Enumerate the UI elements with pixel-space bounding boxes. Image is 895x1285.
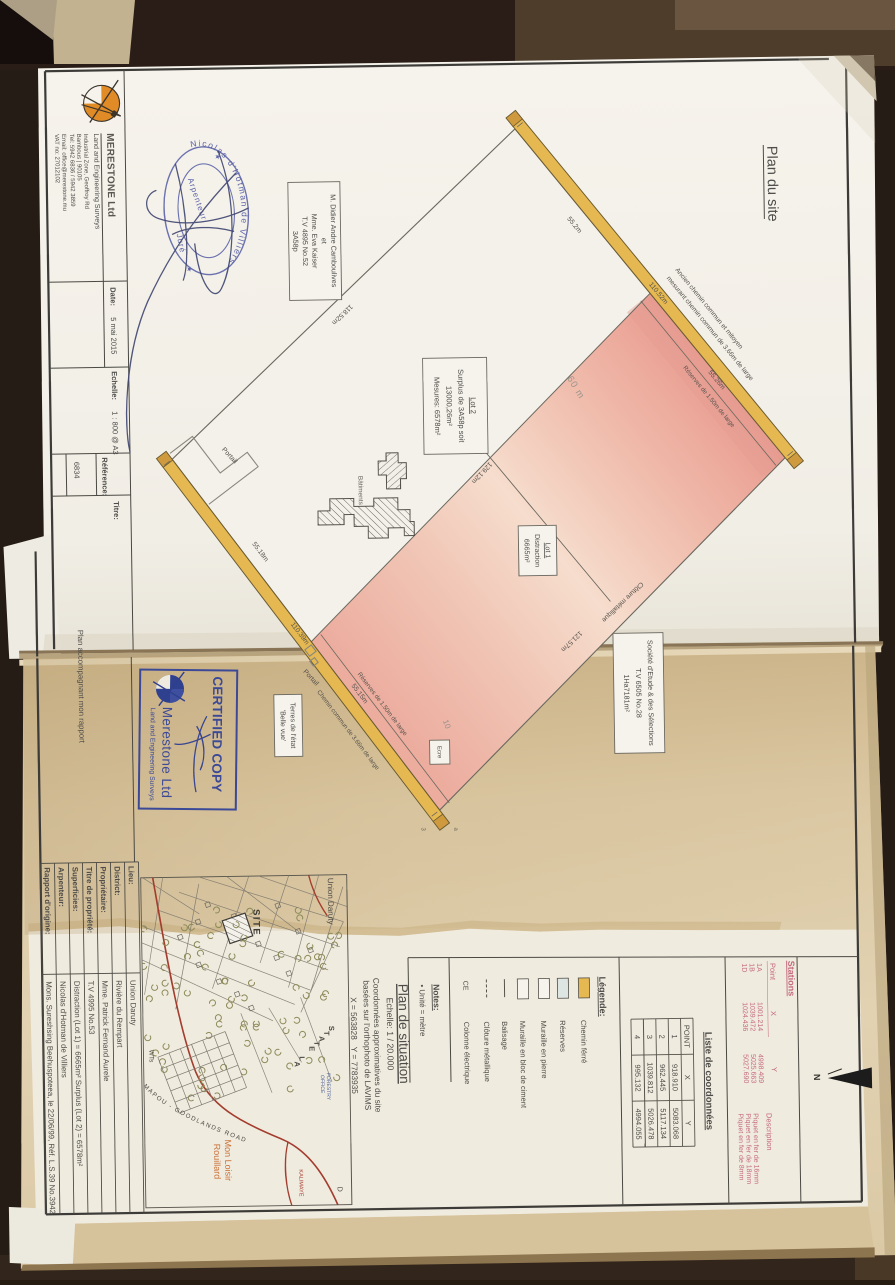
svg-text:M. Didier Andre Camboulives: M. Didier Andre Camboulives (328, 194, 338, 288)
svg-text:Colonne électrique: Colonne électrique (462, 1022, 472, 1085)
svg-text:Balisage: Balisage (500, 1021, 509, 1050)
svg-text:Description: Description (764, 1113, 774, 1151)
svg-text:WTs: WTs (147, 1050, 154, 1063)
svg-text:Piquet en fer de 8mm: Piquet en fer de 8mm (736, 1113, 744, 1180)
svg-text:5025.663: 5025.663 (749, 1054, 756, 1083)
svg-text:E: E (307, 1046, 316, 1051)
svg-text:4998.409: 4998.409 (757, 1054, 764, 1083)
svg-text:1 : 800 @ A3: 1 : 800 @ A3 (110, 411, 120, 455)
svg-text:CERTIFIED COPY: CERTIFIED COPY (209, 676, 225, 792)
svg-text:1: 1 (670, 1034, 679, 1038)
svg-text:1A: 1A (755, 963, 762, 972)
svg-text:Liste de coordonnées: Liste de coordonnées (702, 1032, 715, 1130)
svg-text:Plan du site: Plan du site (763, 146, 780, 222)
svg-text:Titre:: Titre: (112, 501, 121, 520)
svg-text:'Belle vue': 'Belle vue' (279, 710, 286, 742)
svg-text:Mme. Eva Kaiser: Mme. Eva Kaiser (310, 214, 320, 269)
svg-text:• Unité = mètre: • Unité = mètre (417, 984, 427, 1036)
svg-text:Bambous | 90105: Bambous | 90105 (75, 134, 82, 182)
svg-text:Notes:: Notes: (431, 984, 441, 1011)
svg-text:918.910: 918.910 (670, 1064, 679, 1091)
svg-text:Bâtiments: Bâtiments (356, 476, 363, 506)
svg-text:4: 4 (633, 1035, 642, 1039)
svg-text:Rouillard: Rouillard (212, 1144, 223, 1180)
svg-text:3A58p: 3A58p (291, 231, 300, 252)
svg-text:Echelle:: Echelle: (110, 371, 119, 400)
svg-text:VAT no: 27012102: VAT no: 27012102 (53, 134, 60, 184)
svg-text:2: 2 (657, 1035, 666, 1039)
svg-text:962.445: 962.445 (658, 1064, 667, 1091)
svg-text:Lot 1: Lot 1 (544, 543, 551, 559)
svg-text:5027.690: 5027.690 (742, 1054, 749, 1083)
svg-text:Tel: 5942 6836 / 5942 3859: Tel: 5942 6836 / 5942 3859 (68, 134, 75, 207)
svg-text:5026.478: 5026.478 (646, 1108, 655, 1139)
svg-text:POINT: POINT (682, 1025, 691, 1048)
svg-text:Terres de l'état: Terres de l'état (288, 703, 296, 749)
svg-text:Echelle: 1 / 20.000: Echelle: 1 / 20.000 (385, 997, 396, 1070)
svg-text:4994.055: 4994.055 (634, 1108, 643, 1139)
svg-text:T.V 4895 No.52: T.V 4895 No.52 (300, 216, 310, 266)
svg-text:KALIMAYE: KALIMAYE (297, 1169, 303, 1197)
svg-text:Muraille en bloc de ciment: Muraille en bloc de ciment (518, 1021, 528, 1109)
svg-text:Mesures: 6578m²: Mesures: 6578m² (432, 377, 442, 436)
svg-text:Superficies:: Superficies: (71, 867, 81, 912)
svg-text:1B: 1B (748, 963, 755, 972)
svg-text:1039.472: 1039.472 (748, 1002, 755, 1031)
svg-text:Lieu:: Lieu: (127, 866, 136, 885)
svg-text:T.V 4995 No.53: T.V 4995 No.53 (86, 981, 96, 1035)
svg-text:basées sur l’orthophoto de LAV: basées sur l’orthophoto de LAVIMS (361, 980, 373, 1111)
svg-text:Réserves: Réserves (558, 1020, 568, 1052)
svg-text:Titre de propriété:: Titre de propriété: (85, 867, 95, 934)
svg-text:Merestone Ltd: Merestone Ltd (159, 707, 175, 799)
svg-text:Légende:: Légende: (597, 977, 608, 1017)
svg-text:Rivière du Rempart: Rivière du Rempart (114, 980, 124, 1048)
svg-text:1Ha7181m²: 1Ha7181m² (622, 674, 632, 712)
svg-text:Distraction: Distraction (533, 534, 541, 567)
svg-text:1D: 1D (740, 963, 747, 972)
svg-text:Ecre: Ecre (436, 746, 442, 759)
svg-text:Propriétaire:: Propriétaire: (99, 866, 109, 913)
svg-text:1024.436: 1024.436 (741, 1002, 748, 1031)
svg-text:Email: office@merestone.mu: Email: office@merestone.mu (60, 134, 67, 211)
svg-text:6665m²: 6665m² (523, 539, 530, 564)
svg-text:CE: CE (461, 981, 468, 991)
svg-text:Surplus de 3A58p soit: Surplus de 3A58p soit (456, 369, 466, 443)
svg-text:6834: 6834 (72, 462, 81, 479)
svg-text:3: 3 (645, 1035, 654, 1039)
svg-text:Y: Y (770, 1067, 779, 1072)
svg-text:Muraille en pierre: Muraille en pierre (539, 1020, 549, 1078)
svg-text:5 mai 2015: 5 mai 2015 (109, 317, 119, 354)
svg-text:Mon Loisir: Mon Loisir (223, 1139, 234, 1181)
svg-text:Union Daruty: Union Daruty (128, 980, 138, 1026)
svg-text:Mme. Patrick Fernand Aurele: Mme. Patrick Fernand Aurele (100, 980, 111, 1081)
svg-text:Industrial Zone, Geoffroy Rd: Industrial Zone, Geoffroy Rd (82, 134, 89, 209)
svg-text:T.V 6505 No.28: T.V 6505 No.28 (634, 668, 644, 718)
svg-text:995.132: 995.132 (633, 1064, 642, 1091)
svg-text:Union Daruty: Union Daruty (326, 878, 336, 925)
svg-text:N: N (812, 1074, 822, 1081)
svg-text:et: et (320, 238, 329, 244)
svg-text:Arpenteur:: Arpenteur: (57, 867, 67, 907)
svg-text:5083.068: 5083.068 (671, 1108, 680, 1139)
svg-text:Stations: Stations (786, 961, 797, 997)
svg-text:OFFICE: OFFICE (319, 1075, 325, 1094)
svg-text:X: X (769, 1011, 778, 1016)
svg-text:1039.812: 1039.812 (645, 1062, 654, 1093)
svg-text:Plan accompagnant mon rapport: Plan accompagnant mon rapport (76, 630, 87, 744)
svg-text:Rapport d'origine:: Rapport d'origine: (43, 867, 53, 934)
svg-text:District:: District: (113, 866, 122, 896)
svg-text:13000,26m²: 13000,26m² (444, 386, 454, 427)
svg-text:X: X (683, 1075, 692, 1080)
svg-text:Chemin férré: Chemin férré (579, 1020, 589, 1063)
svg-text:D: D (336, 1187, 343, 1192)
svg-text:Société d'Etude & des Sélectio: Société d'Etude & des Sélections (646, 640, 657, 746)
svg-text:Point: Point (768, 963, 777, 981)
svg-text:A: A (293, 1061, 302, 1067)
svg-text:Clôture métallique: Clôture métallique (482, 1021, 492, 1082)
svg-text:MERESTONE Ltd: MERESTONE Ltd (104, 133, 116, 217)
svg-text:Y: Y (684, 1121, 693, 1126)
svg-text:Land and Engineering Surveys: Land and Engineering Surveys (148, 708, 156, 802)
svg-text:Nicolas d'Hotman de Villiers: Nicolas d'Hotman de Villiers (58, 981, 69, 1078)
svg-text:Lot 2: Lot 2 (469, 397, 478, 414)
svg-text:5117.134: 5117.134 (659, 1108, 668, 1139)
svg-text:1001.214: 1001.214 (756, 1002, 763, 1031)
svg-text:Date:: Date: (108, 287, 117, 306)
svg-text:Référence:: Référence: (100, 457, 110, 496)
svg-text:Plan de situation: Plan de situation (395, 984, 412, 1084)
